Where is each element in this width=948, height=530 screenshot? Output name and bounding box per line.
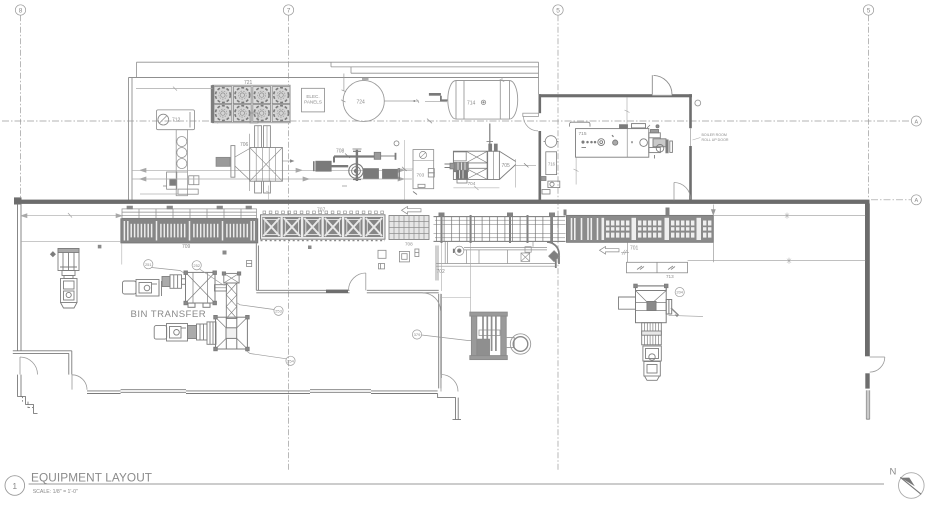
svg-text:701: 701 — [630, 246, 639, 252]
svg-text:1: 1 — [12, 481, 17, 491]
svg-text:703: 703 — [417, 173, 425, 178]
svg-text:5: 5 — [867, 7, 871, 14]
svg-text:713: 713 — [666, 274, 674, 279]
svg-text:714: 714 — [467, 101, 476, 107]
svg-text:708: 708 — [336, 149, 345, 155]
svg-text:A: A — [914, 198, 918, 204]
svg-text:716: 716 — [548, 162, 556, 167]
svg-text:251: 251 — [145, 262, 152, 267]
svg-text:715: 715 — [579, 131, 587, 137]
svg-text:N: N — [890, 467, 897, 478]
svg-text:EQUIPMENT LAYOUT: EQUIPMENT LAYOUT — [31, 470, 152, 484]
svg-text:ELEC.: ELEC. — [306, 94, 319, 99]
svg-text:252: 252 — [193, 263, 200, 268]
svg-text:706: 706 — [240, 142, 249, 148]
svg-text:5: 5 — [556, 7, 560, 14]
svg-text:204: 204 — [676, 290, 683, 295]
svg-text:A: A — [914, 119, 918, 125]
svg-text:ROLL UP DOOR: ROLL UP DOOR — [702, 138, 729, 142]
svg-text:7: 7 — [287, 7, 291, 14]
svg-text:708: 708 — [405, 242, 413, 247]
svg-text:712: 712 — [172, 118, 181, 124]
svg-text:704: 704 — [468, 181, 476, 186]
svg-text:702: 702 — [437, 269, 446, 275]
svg-text:724: 724 — [357, 99, 366, 105]
svg-text:SCALE: 1/8" = 1'-0": SCALE: 1/8" = 1'-0" — [33, 489, 78, 495]
svg-text:705: 705 — [502, 163, 511, 169]
svg-text:BIN TRANSFER: BIN TRANSFER — [131, 309, 207, 320]
svg-text:709: 709 — [182, 244, 191, 250]
svg-text:8: 8 — [19, 7, 23, 14]
svg-text:253: 253 — [275, 308, 282, 313]
svg-text:379: 379 — [414, 332, 421, 337]
svg-text:PANELS: PANELS — [304, 99, 322, 104]
svg-text:BOILER ROOM: BOILER ROOM — [702, 133, 727, 137]
svg-text:254: 254 — [287, 358, 294, 363]
